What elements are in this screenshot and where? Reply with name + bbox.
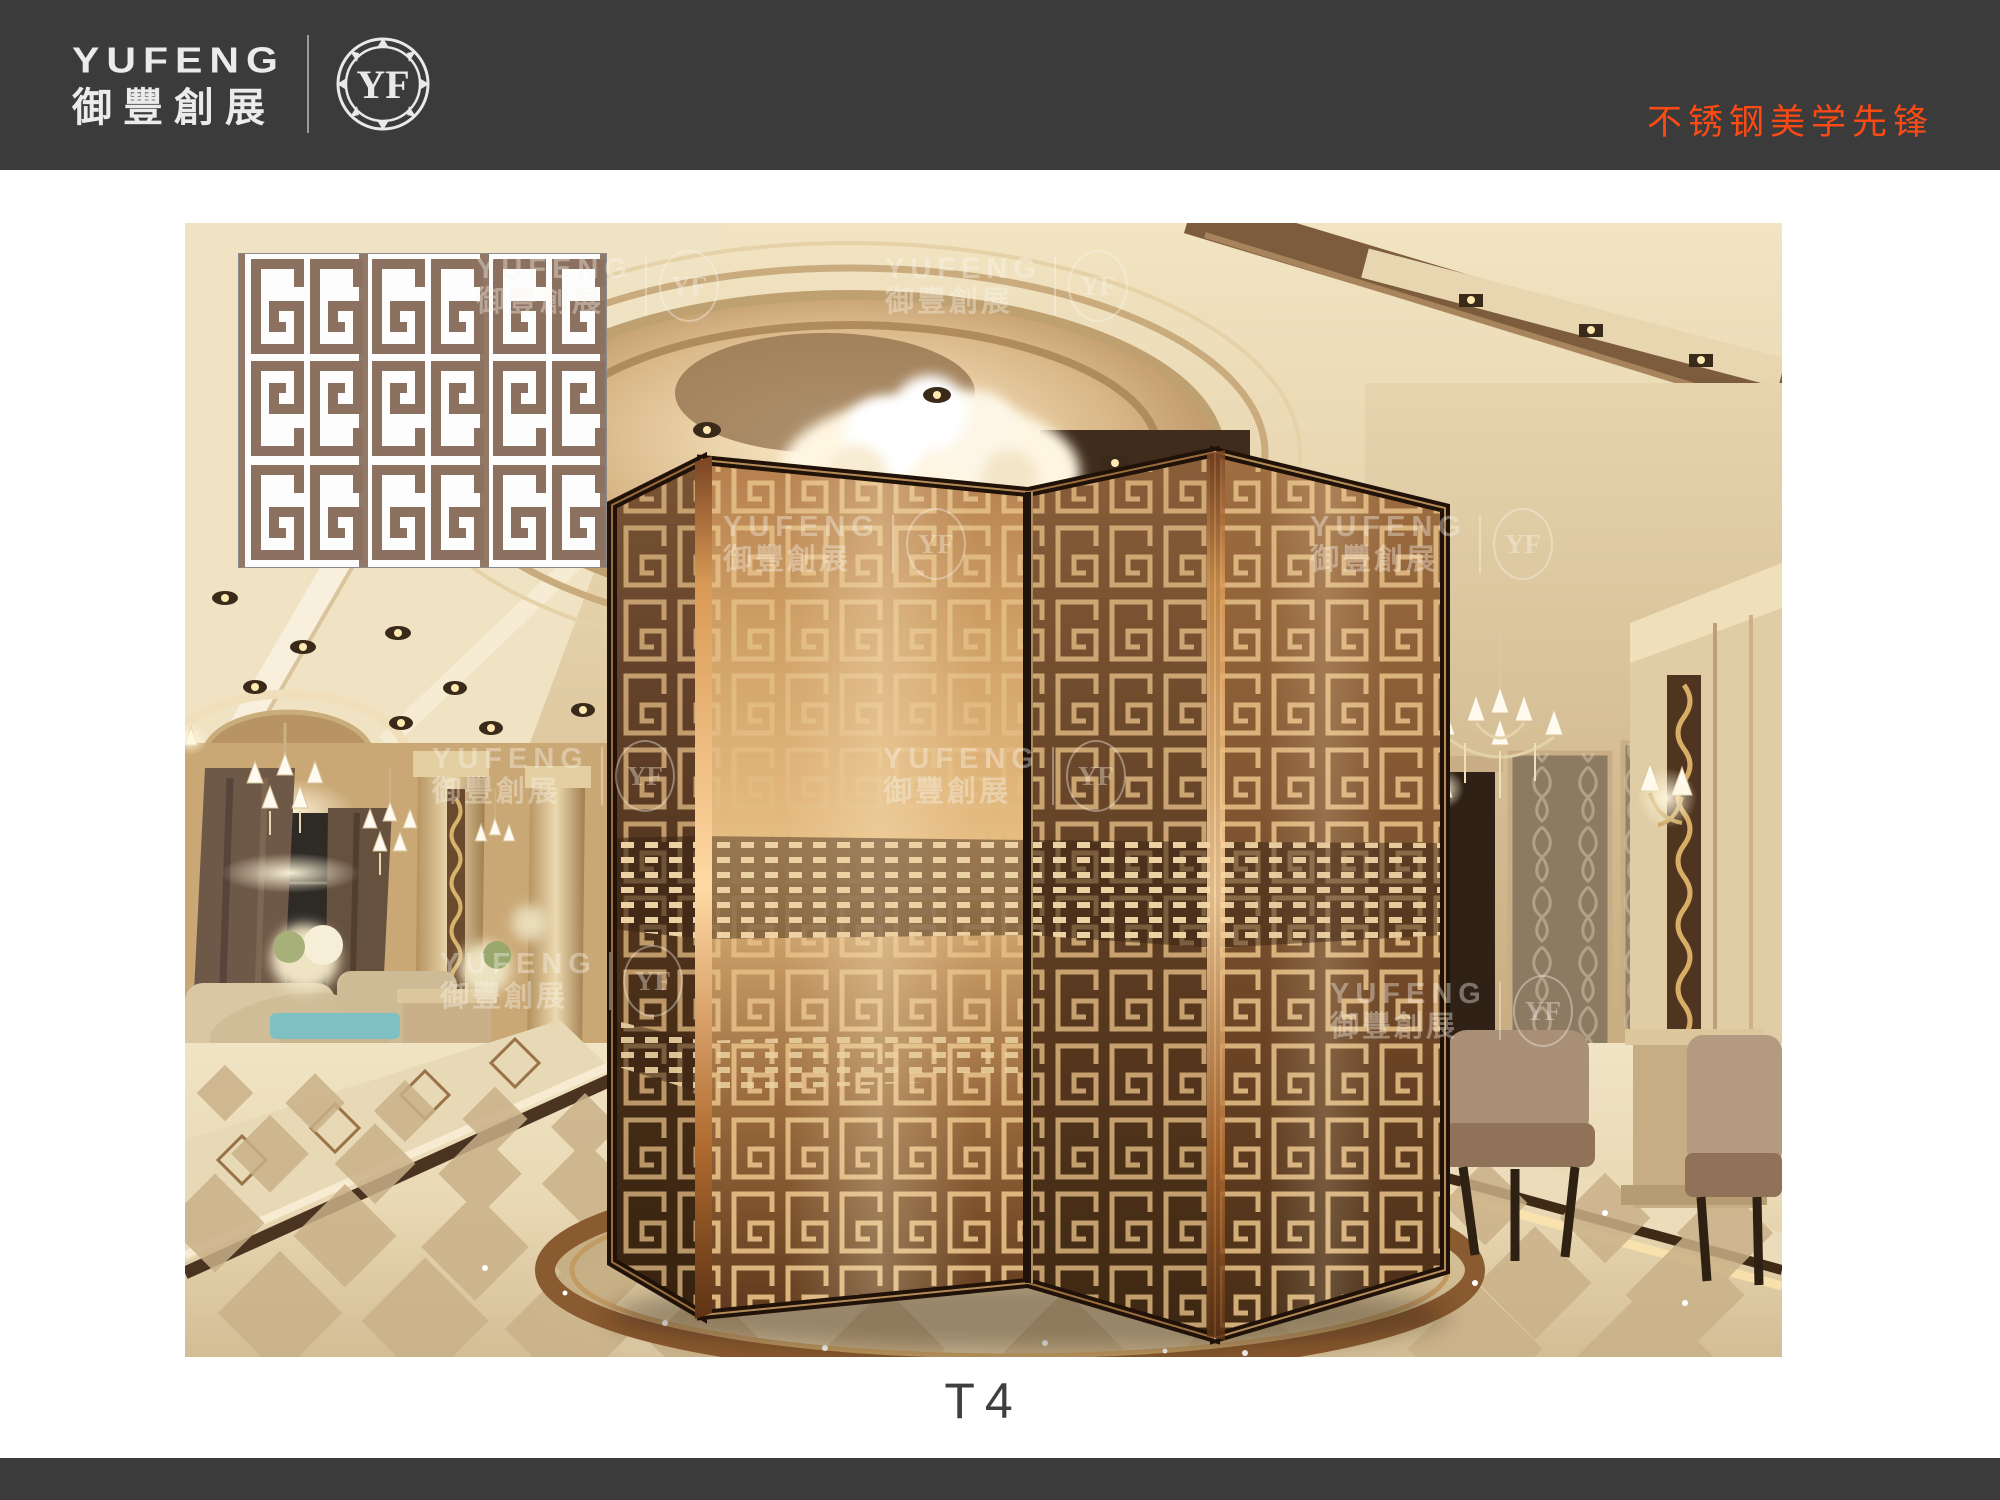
product-photo: YUFENG御豐創展 YF YUFENG御豐創展 YF YUFENG御豐創展 Y… bbox=[185, 223, 1782, 1357]
folding-screen bbox=[608, 450, 1448, 1351]
screen-panel-1 bbox=[612, 460, 702, 1315]
screen-hinge-1 bbox=[695, 456, 712, 1319]
pattern-cells bbox=[256, 264, 600, 555]
product-code-label: T4 bbox=[185, 1372, 1782, 1430]
footer-bar bbox=[0, 1458, 2000, 1500]
brand-name-en: YUFENG bbox=[72, 42, 285, 78]
badge-monogram: YF bbox=[356, 62, 409, 107]
screen-hinge-3 bbox=[1207, 450, 1225, 1340]
brand-logo-text: YUFENG 御豐創展 bbox=[72, 40, 285, 128]
yf-badge-icon: YF bbox=[333, 34, 433, 134]
header-slogan: 不锈钢美学先锋 bbox=[1647, 94, 1934, 145]
screen-panel-2 bbox=[702, 460, 1028, 1315]
brand-name-zh: 御豐創展 bbox=[72, 88, 285, 128]
logo-divider bbox=[307, 35, 309, 133]
header-bar: YUFENG 御豐創展 YF 不锈钢美学先锋 bbox=[0, 0, 2000, 170]
catalog-page: YUFENG 御豐創展 YF 不锈钢美学先锋 bbox=[0, 0, 2000, 1500]
greek-key-pattern bbox=[239, 254, 606, 567]
brand-logo: YUFENG 御豐創展 YF bbox=[72, 34, 433, 134]
screen-panel-3 bbox=[1028, 452, 1215, 1338]
pattern-detail-inset bbox=[238, 253, 607, 568]
screen-panel-4 bbox=[1215, 452, 1445, 1338]
